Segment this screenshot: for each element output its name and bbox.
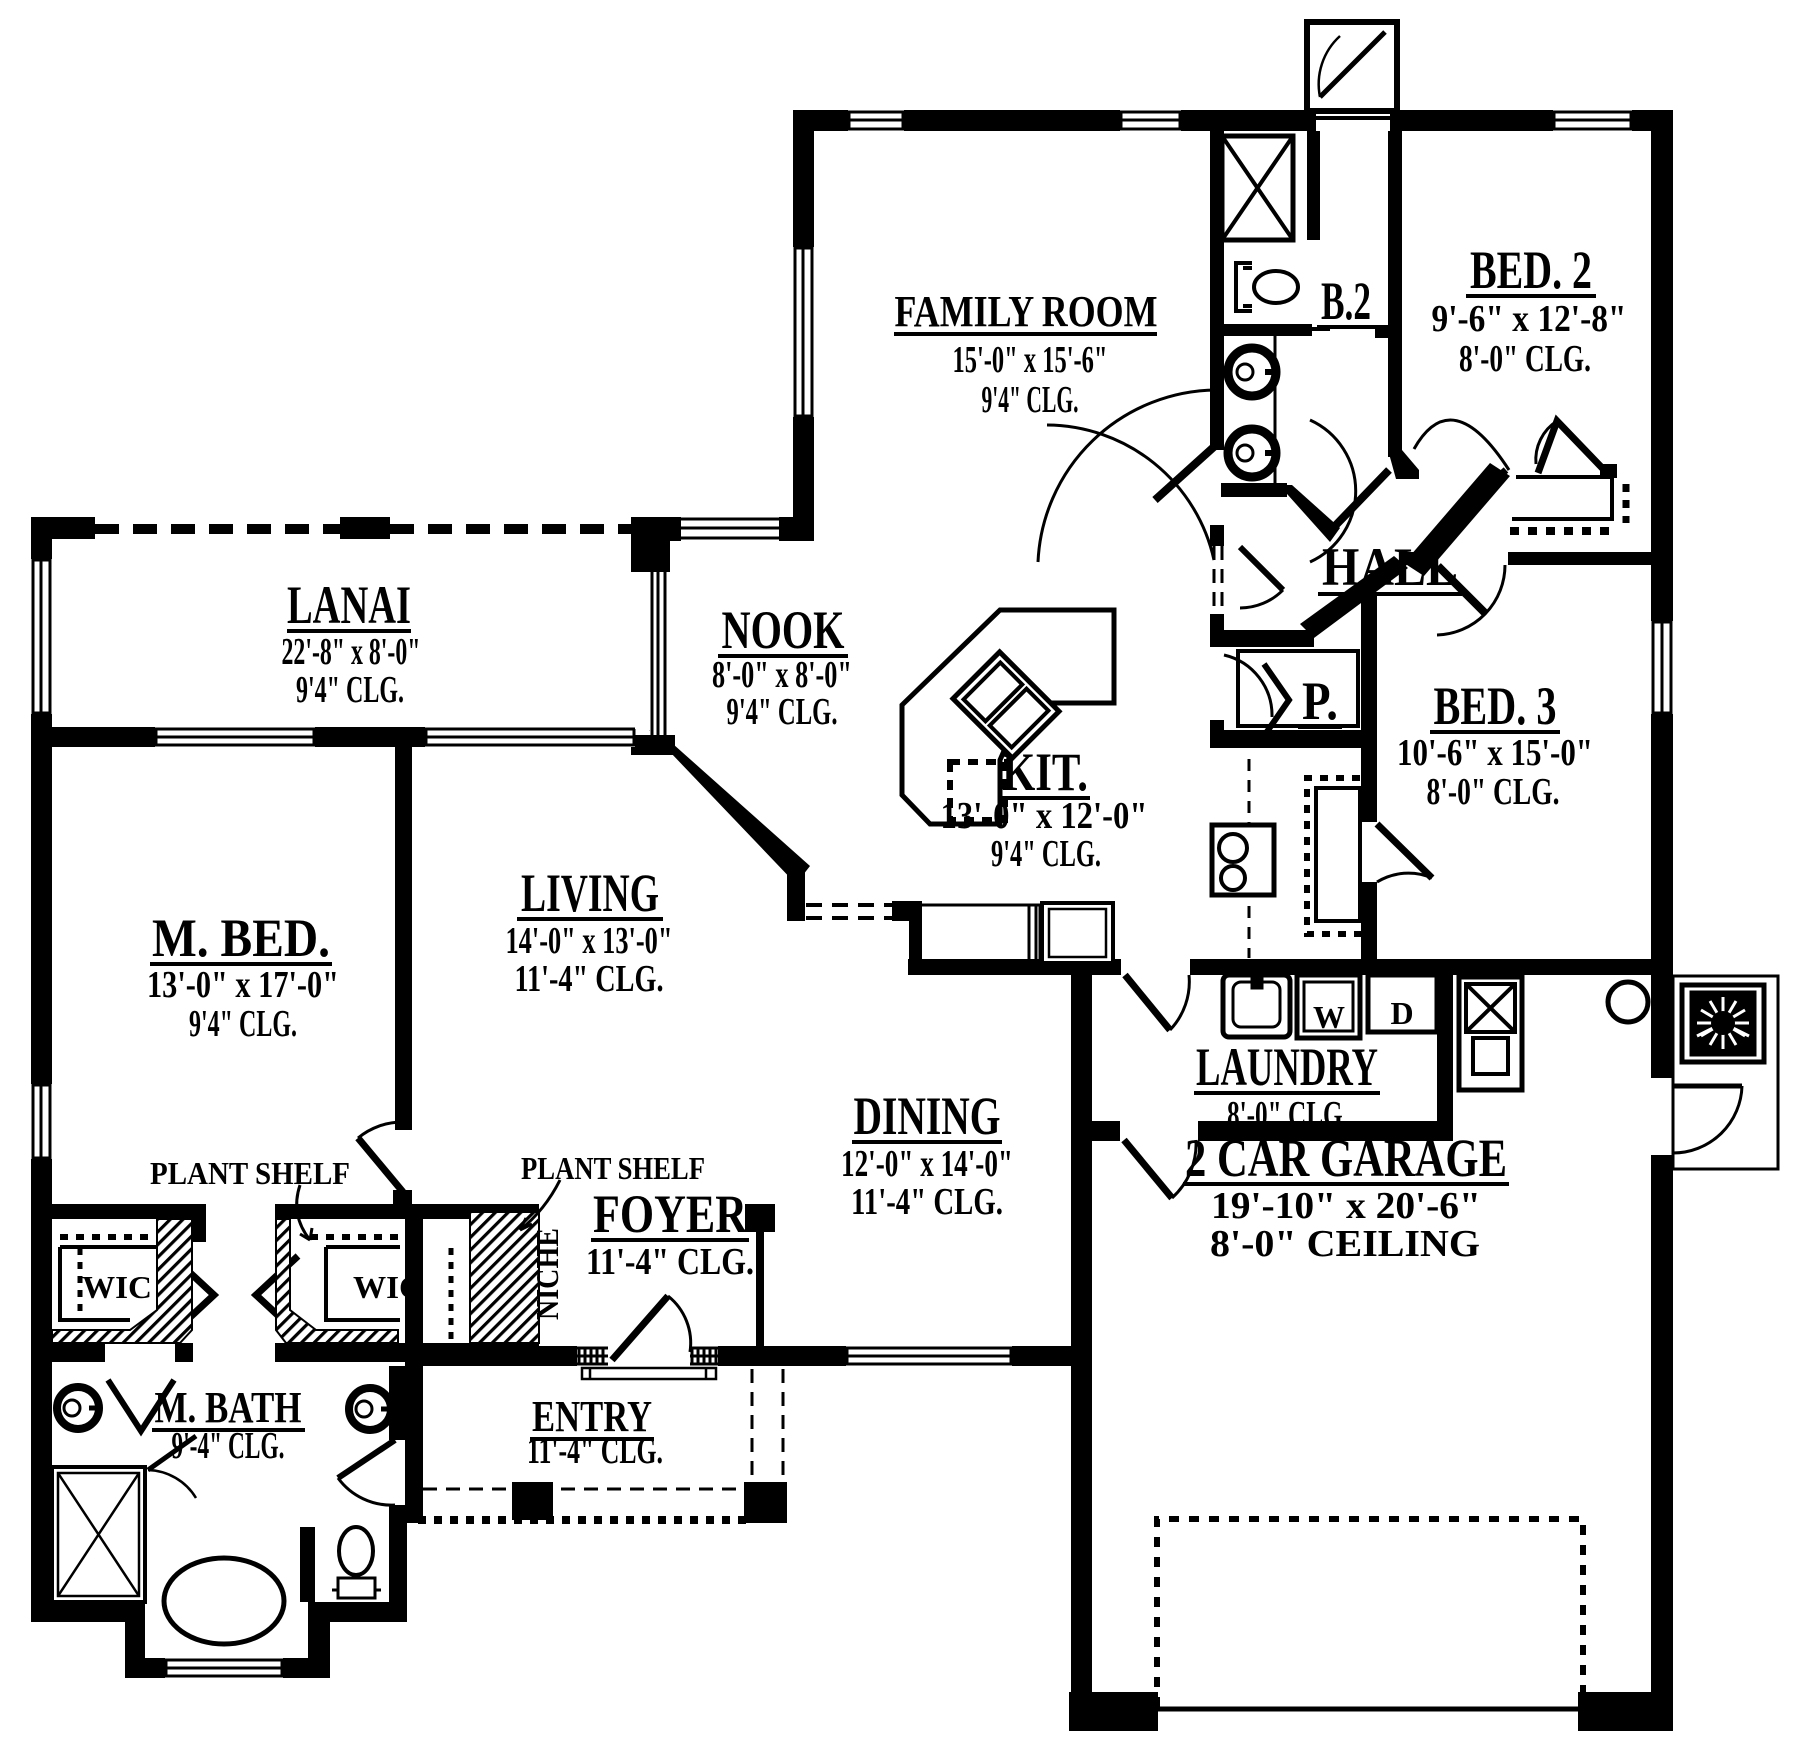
svg-text:11'-4" CLG.: 11'-4" CLG. — [586, 1241, 754, 1283]
svg-text:19'-10" x 20'-6": 19'-10" x 20'-6" — [1211, 1185, 1481, 1227]
svg-text:LANAI: LANAI — [287, 575, 411, 635]
svg-text:14'-0" x 13'-0": 14'-0" x 13'-0" — [506, 920, 673, 962]
svg-text:9'-4" CLG.: 9'-4" CLG. — [172, 1425, 285, 1467]
svg-text:8'-0" CLG.: 8'-0" CLG. — [1459, 338, 1591, 380]
svg-text:10'-6" x 15'-0": 10'-6" x 15'-0" — [1397, 732, 1593, 774]
svg-text:11'-4" CLG.: 11'-4" CLG. — [851, 1181, 1003, 1223]
svg-text:9'-6" x 12'-8": 9'-6" x 12'-8" — [1432, 298, 1627, 340]
svg-text:WIC: WIC — [353, 1269, 423, 1305]
svg-text:8'-0" CLG.: 8'-0" CLG. — [1427, 771, 1560, 813]
svg-text:8'-0" x 8'-0": 8'-0" x 8'-0" — [712, 654, 852, 696]
svg-text:13'-0" x 17'-0": 13'-0" x 17'-0" — [147, 964, 339, 1006]
svg-text:11'-4" CLG.: 11'-4" CLG. — [515, 958, 664, 1000]
svg-text:2 CAR GARAGE: 2 CAR GARAGE — [1185, 1128, 1507, 1188]
svg-text:B.2: B.2 — [1321, 271, 1371, 331]
svg-text:BED. 2: BED. 2 — [1470, 240, 1592, 300]
svg-text:NOOK: NOOK — [722, 600, 845, 660]
svg-text:FAMILY ROOM: FAMILY ROOM — [895, 287, 1158, 336]
svg-text:DINING: DINING — [854, 1086, 1001, 1146]
svg-text:9'4" CLG.: 9'4" CLG. — [189, 1003, 297, 1045]
svg-text:13'-0" x 12'-0": 13'-0" x 12'-0" — [941, 795, 1148, 837]
svg-text:BED. 3: BED. 3 — [1434, 676, 1557, 736]
svg-text:WIC: WIC — [82, 1269, 152, 1305]
svg-text:M. BED.: M. BED. — [152, 908, 330, 968]
svg-text:FOYER: FOYER — [593, 1184, 748, 1244]
svg-text:15'-0" x 15'-6": 15'-0" x 15'-6" — [953, 339, 1108, 381]
svg-text:LIVING: LIVING — [521, 863, 659, 923]
svg-text:8'-0" CEILING: 8'-0" CEILING — [1210, 1223, 1480, 1265]
svg-text:W: W — [1313, 999, 1345, 1035]
svg-text:9'4" CLG.: 9'4" CLG. — [982, 379, 1079, 421]
svg-text:22'-8" x 8'-0": 22'-8" x 8'-0" — [282, 631, 421, 673]
svg-text:KIT.: KIT. — [1002, 742, 1088, 802]
svg-text:9'4" CLG.: 9'4" CLG. — [727, 691, 838, 733]
svg-text:PLANT SHELF: PLANT SHELF — [521, 1150, 705, 1186]
svg-text:9'4" CLG.: 9'4" CLG. — [991, 833, 1101, 875]
svg-text:LAUNDRY: LAUNDRY — [1196, 1037, 1378, 1097]
svg-text:HALL: HALL — [1322, 537, 1458, 597]
svg-text:11'-4" CLG.: 11'-4" CLG. — [527, 1430, 663, 1472]
svg-text:PLANT SHELF: PLANT SHELF — [150, 1155, 350, 1191]
svg-text:D: D — [1390, 995, 1413, 1031]
svg-text:P.: P. — [1302, 671, 1338, 731]
svg-text:9'4" CLG.: 9'4" CLG. — [296, 669, 404, 711]
svg-text:12'-0" x 14'-0": 12'-0" x 14'-0" — [841, 1143, 1013, 1185]
svg-text:NICHE: NICHE — [529, 1228, 565, 1320]
